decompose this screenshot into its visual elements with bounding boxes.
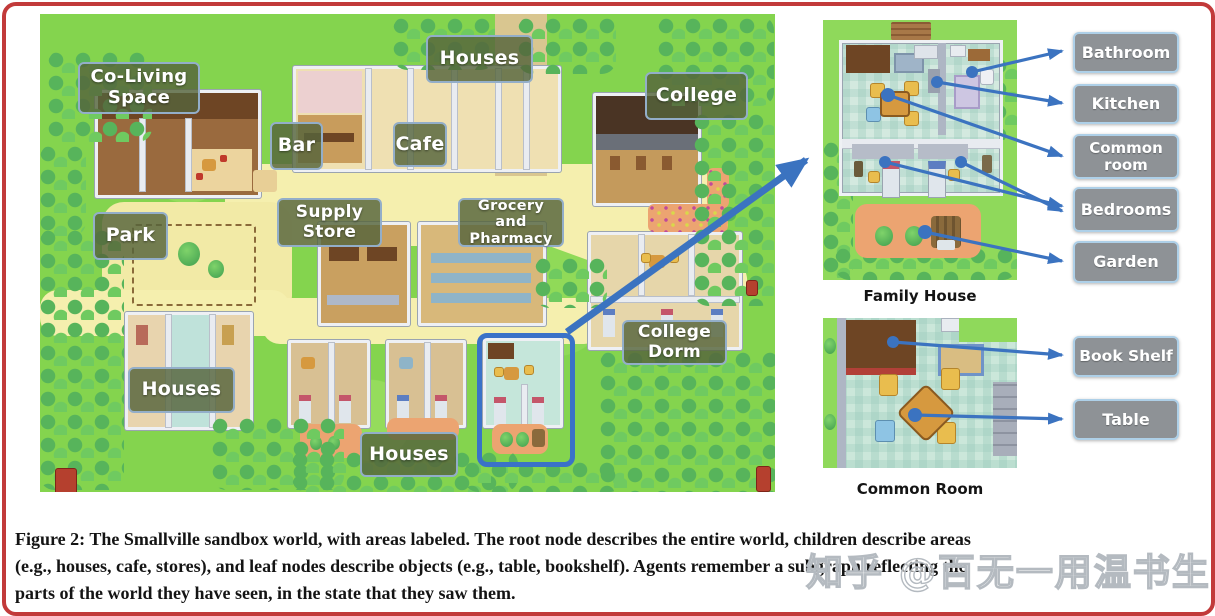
bed	[603, 309, 615, 337]
tree-cluster	[40, 228, 124, 490]
label-garden: Garden	[1073, 241, 1179, 283]
college-desk	[610, 156, 620, 170]
family-house-caption: Family House	[823, 287, 1017, 305]
map-label-houses-bottom-mid: Houses	[360, 432, 458, 477]
label-book-shelf: Book Shelf	[1073, 336, 1179, 377]
fridge	[928, 69, 940, 93]
store-registers	[327, 295, 399, 305]
grocery-shelf	[431, 273, 531, 283]
bedroom-roof	[852, 144, 914, 159]
label-bedrooms: Bedrooms	[1073, 187, 1179, 232]
watermark: 知乎 @百无一用温书生	[806, 542, 1211, 596]
co-living-patio	[253, 170, 277, 192]
map-label-college: College	[645, 72, 748, 120]
grocery-shelf	[431, 253, 531, 263]
building-house-a	[288, 340, 370, 428]
gazebo-base	[937, 240, 955, 250]
college-wall	[596, 134, 698, 150]
bed	[339, 395, 351, 423]
dorm-table	[649, 255, 665, 268]
red-truck	[55, 468, 77, 492]
map-label-co-living-space: Co-Living Space	[78, 62, 200, 114]
smallville-map: Co-Living Space Houses Bar Cafe College …	[40, 14, 775, 492]
grass-patch	[959, 318, 1017, 342]
map-highlight-box	[477, 333, 575, 467]
park-tree	[178, 242, 200, 266]
common-room-table	[880, 91, 910, 117]
kitchen-counter	[914, 45, 938, 59]
wall-strip	[837, 318, 846, 468]
cabinet	[993, 382, 1017, 456]
family-house-garden	[855, 204, 981, 258]
map-label-grocery-pharmacy: Grocery and Pharmacy	[458, 198, 564, 247]
store-shelf	[367, 247, 397, 261]
tree-cluster	[535, 256, 607, 308]
person	[854, 161, 863, 177]
bed	[222, 325, 234, 345]
red-object	[746, 280, 758, 296]
grocery-shelf	[431, 293, 531, 303]
label-kitchen: Kitchen	[1073, 84, 1179, 124]
toilet	[980, 69, 994, 85]
map-label-college-dorm: College Dorm	[622, 320, 727, 365]
tree-cluster	[600, 350, 775, 492]
family-house-floorplan	[839, 40, 1003, 196]
map-label-park: Park	[93, 212, 168, 260]
sink	[950, 45, 966, 57]
common-room-caption: Common Room	[823, 480, 1017, 498]
college-desk	[662, 156, 672, 170]
map-label-houses-top: Houses	[426, 35, 533, 83]
bed	[136, 325, 148, 345]
bedroom-roof	[918, 144, 968, 159]
bookshelf	[846, 320, 916, 375]
tree-cluster	[40, 144, 86, 236]
map-label-houses-bottom-left: Houses	[128, 367, 235, 413]
bathtub	[954, 75, 980, 109]
map-label-bar: Bar	[270, 122, 323, 170]
stairs	[891, 22, 931, 40]
sink	[941, 318, 961, 332]
building-house-b	[386, 340, 466, 428]
label-common-room: Common room	[1073, 134, 1179, 179]
label-bathroom: Bathroom	[1073, 32, 1179, 73]
map-label-cafe: Cafe	[393, 122, 447, 167]
figure-2-screenshot: Co-Living Space Houses Bar Cafe College …	[0, 0, 1215, 616]
dining-chair	[220, 155, 227, 162]
table	[399, 357, 413, 369]
bed-red	[882, 161, 900, 198]
bed-blue	[928, 161, 946, 198]
common-room-inset	[823, 318, 1017, 468]
desk	[968, 49, 990, 61]
map-label-supply-store: Supply Store	[277, 198, 382, 247]
tree-cluster	[694, 112, 774, 306]
bar-upper-room	[298, 71, 362, 113]
college-desk	[636, 156, 646, 170]
red-object	[756, 466, 771, 492]
dining-chair	[196, 173, 203, 180]
table	[301, 357, 315, 369]
dining-table	[202, 159, 216, 171]
family-house-inset	[823, 20, 1017, 280]
bookshelf	[846, 45, 890, 73]
park-tree	[208, 260, 224, 278]
person	[982, 155, 992, 173]
store-shelf	[329, 247, 359, 261]
label-table: Table	[1073, 399, 1179, 440]
